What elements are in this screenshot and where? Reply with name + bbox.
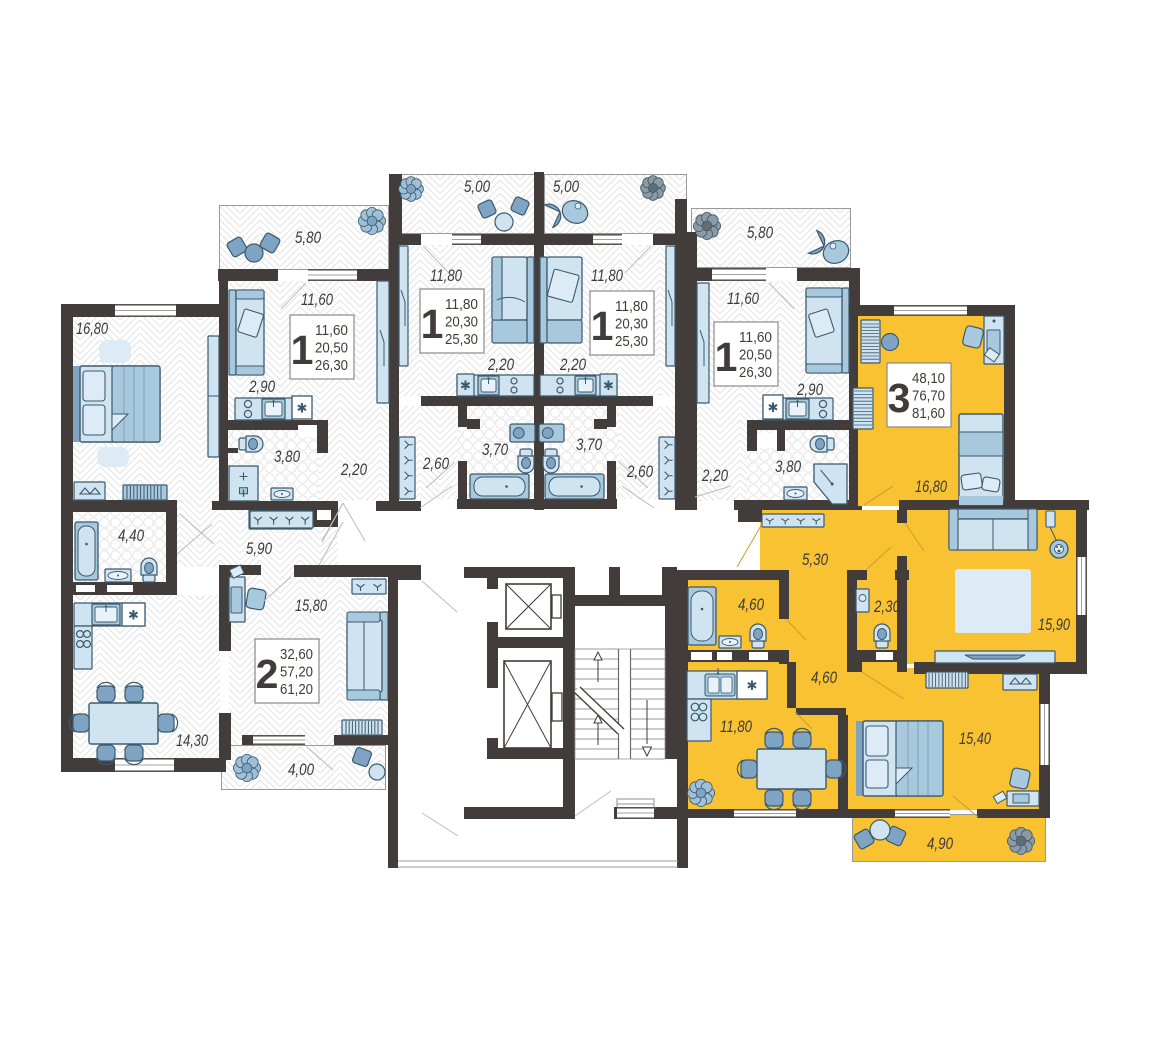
- svg-text:11,60: 11,60: [315, 323, 348, 339]
- svg-text:57,20: 57,20: [280, 665, 313, 681]
- svg-text:11,60: 11,60: [301, 291, 334, 309]
- svg-text:2,60: 2,60: [422, 455, 449, 473]
- svg-text:✱: ✱: [128, 608, 139, 623]
- svg-text:11,80: 11,80: [720, 718, 753, 736]
- svg-text:20,30: 20,30: [445, 315, 478, 331]
- svg-text:11,60: 11,60: [739, 330, 772, 346]
- svg-text:4,60: 4,60: [811, 669, 838, 687]
- svg-text:3: 3: [888, 375, 911, 421]
- svg-text:2,90: 2,90: [796, 381, 823, 399]
- svg-text:✱: ✱: [460, 378, 471, 393]
- svg-text:26,30: 26,30: [739, 365, 772, 381]
- svg-text:16,80: 16,80: [76, 320, 109, 338]
- svg-text:11,60: 11,60: [727, 290, 760, 308]
- svg-text:2,20: 2,20: [559, 356, 586, 374]
- svg-text:1: 1: [591, 303, 614, 349]
- svg-text:3,70: 3,70: [482, 441, 509, 459]
- svg-text:11,80: 11,80: [591, 267, 624, 285]
- svg-text:✱: ✱: [747, 678, 758, 693]
- svg-text:2,20: 2,20: [487, 356, 514, 374]
- svg-text:5,00: 5,00: [553, 178, 580, 196]
- svg-text:15,40: 15,40: [959, 730, 992, 748]
- svg-text:3,80: 3,80: [775, 458, 802, 476]
- svg-text:4,60: 4,60: [738, 596, 765, 614]
- svg-text:20,50: 20,50: [315, 341, 348, 357]
- svg-text:11,80: 11,80: [615, 299, 648, 315]
- svg-text:20,30: 20,30: [615, 317, 648, 333]
- svg-text:25,30: 25,30: [445, 332, 478, 348]
- svg-text:2,20: 2,20: [340, 461, 367, 479]
- svg-text:76,70: 76,70: [912, 389, 945, 405]
- svg-text:48,10: 48,10: [912, 371, 945, 387]
- svg-text:2,20: 2,20: [701, 467, 728, 485]
- svg-text:26,30: 26,30: [315, 358, 348, 374]
- svg-text:5,90: 5,90: [246, 540, 273, 558]
- svg-text:32,60: 32,60: [280, 647, 313, 663]
- svg-text:20,50: 20,50: [739, 348, 772, 364]
- svg-text:16,80: 16,80: [915, 478, 948, 496]
- svg-text:11,80: 11,80: [445, 297, 478, 313]
- svg-text:4,90: 4,90: [927, 835, 954, 853]
- svg-text:14,30: 14,30: [176, 732, 209, 750]
- svg-text:4,40: 4,40: [118, 527, 145, 545]
- svg-text:1: 1: [715, 334, 738, 380]
- svg-text:✱: ✱: [603, 378, 614, 393]
- svg-text:25,30: 25,30: [615, 334, 648, 350]
- svg-text:1: 1: [421, 301, 444, 347]
- svg-text:5,80: 5,80: [747, 224, 774, 242]
- svg-text:2,60: 2,60: [626, 463, 653, 481]
- svg-text:5,00: 5,00: [464, 178, 491, 196]
- svg-text:✱: ✱: [768, 400, 779, 415]
- svg-text:61,20: 61,20: [280, 682, 313, 698]
- svg-text:15,90: 15,90: [1038, 616, 1071, 634]
- svg-text:2,30: 2,30: [873, 598, 900, 616]
- svg-text:2: 2: [256, 651, 279, 697]
- svg-text:15,80: 15,80: [295, 597, 328, 615]
- svg-text:1: 1: [291, 327, 314, 373]
- svg-text:4,00: 4,00: [288, 761, 315, 779]
- svg-text:3,70: 3,70: [576, 436, 603, 454]
- svg-text:2,90: 2,90: [248, 378, 275, 396]
- svg-text:✱: ✱: [297, 401, 308, 416]
- svg-text:11,80: 11,80: [430, 267, 463, 285]
- svg-text:3,80: 3,80: [274, 448, 301, 466]
- svg-text:5,80: 5,80: [295, 229, 322, 247]
- svg-text:81,60: 81,60: [912, 406, 945, 422]
- svg-text:5,30: 5,30: [802, 551, 829, 569]
